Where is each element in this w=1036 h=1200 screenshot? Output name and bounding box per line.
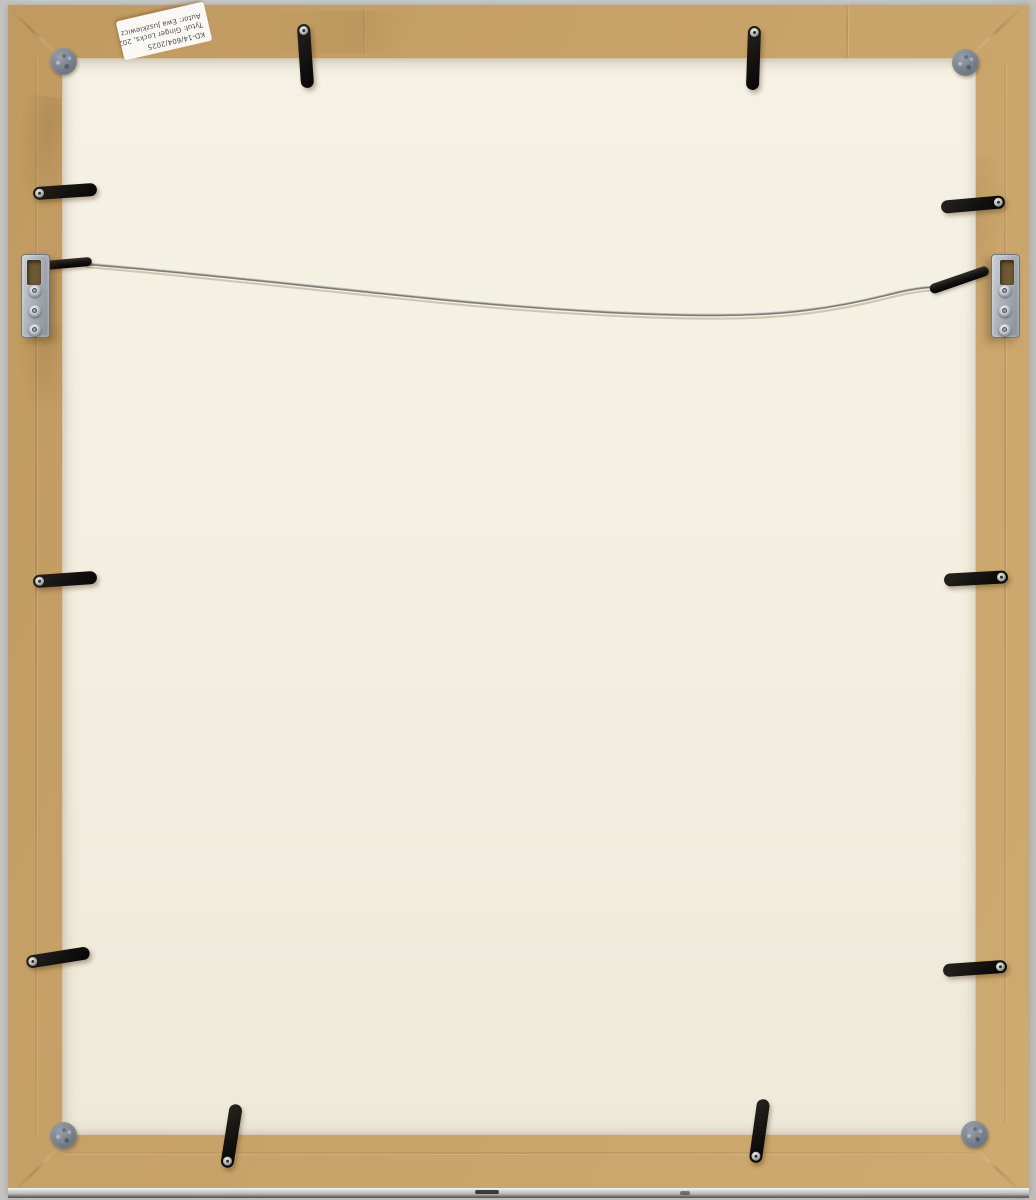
felt-pad-bottom-left [50,1122,77,1149]
photo-backdrop: KD-14/604/2025 Tytuł: Ginger Locks, 2021… [0,0,1036,1200]
hanger-slot [1000,260,1014,285]
hanger-screw [999,324,1011,336]
flexi-clip-right-6 [944,570,1009,586]
strap-hanger-left [21,254,50,338]
hanger-screw [999,285,1011,297]
tape-wrinkle [258,11,488,53]
frame-back: KD-14/604/2025 Tytuł: Ginger Locks, 2021… [8,5,1029,1198]
flexi-clip-top-1 [746,26,761,90]
felt-pad-top-left [50,48,77,75]
tape-seam [363,5,365,55]
frame-metal-edge [8,1188,1029,1198]
inventory-label: KD-14/604/2025 Tytuł: Ginger Locks, 2021… [116,1,213,60]
clip-screw [997,572,1006,581]
hanger-screw [999,305,1011,317]
strap-hanger-right [991,254,1020,338]
felt-pad-top-right [952,49,979,76]
tape-seam [846,5,848,59]
edge-smudge [680,1191,690,1195]
clip-screw [751,1151,761,1161]
backing-board [62,58,976,1135]
clip-screw [299,26,309,36]
tape-seam [64,1152,972,1154]
clip-screw [35,188,45,198]
felt-pad-bottom-right [961,1121,988,1148]
clip-screw [35,576,45,586]
hanger-slot [27,260,41,285]
clip-screw [750,28,759,37]
tape-seam [35,60,37,1133]
edge-smudge [475,1190,499,1194]
hanger-screw [29,324,41,336]
clip-screw [994,197,1004,207]
hanger-screw [29,305,41,317]
clip-screw [28,956,38,966]
hanger-screw [29,285,41,297]
clip-screw [996,962,1006,972]
clip-screw [222,1156,232,1166]
